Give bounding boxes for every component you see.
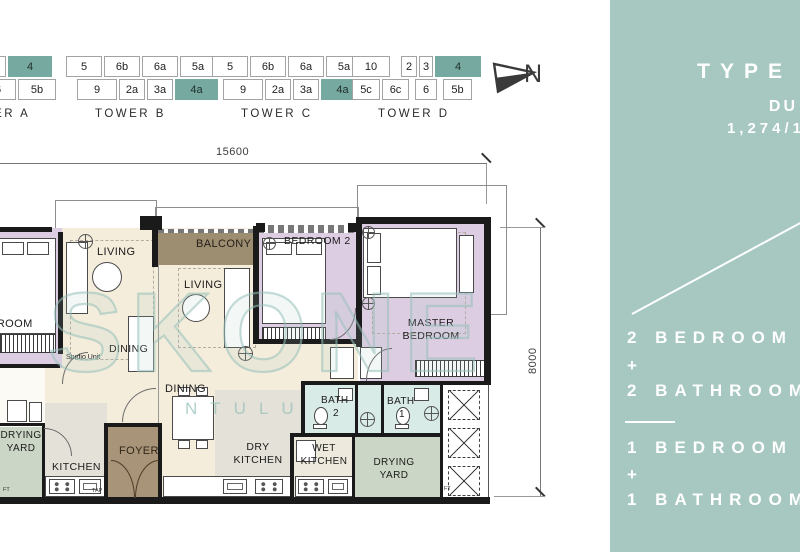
shower-icon bbox=[424, 406, 439, 421]
sink-icon bbox=[223, 479, 247, 494]
wall-segment bbox=[104, 423, 162, 427]
ceiling-fan-icon bbox=[263, 237, 276, 250]
wardrobe-icon bbox=[0, 334, 56, 353]
annotation-ft: FT bbox=[3, 487, 10, 493]
label-wet-kitchen-line2: KITCHEN bbox=[301, 456, 348, 467]
shower-icon bbox=[360, 412, 375, 427]
chair-icon bbox=[196, 440, 208, 449]
basin-icon bbox=[414, 388, 429, 401]
wall-segment bbox=[484, 217, 491, 385]
label-dry-kitchen-line1: DRY bbox=[246, 441, 269, 453]
unit1-bathrooms: 2 BATHROOM bbox=[627, 381, 800, 401]
sink-icon bbox=[328, 479, 348, 494]
stove-icon bbox=[49, 479, 75, 494]
label-drying-line2: YARD bbox=[7, 443, 36, 454]
wall-segment bbox=[356, 220, 362, 347]
diagonal-accent-line bbox=[632, 222, 800, 315]
ceiling-fan-icon bbox=[238, 346, 253, 361]
label-master-bedroom: MASTER BEDROOM bbox=[393, 317, 469, 342]
label-foyer: FOYER bbox=[119, 445, 159, 457]
label-drying-line1: DRYING bbox=[0, 430, 41, 441]
wall-segment bbox=[58, 232, 63, 354]
chair-icon bbox=[178, 440, 190, 449]
wall-segment bbox=[355, 385, 358, 433]
label-bath1: BATH bbox=[387, 396, 415, 407]
label-dry-kitchen: DRY KITCHEN bbox=[212, 441, 304, 466]
stove-icon bbox=[255, 479, 283, 494]
wall-segment bbox=[381, 381, 384, 435]
wall-segment bbox=[253, 226, 259, 344]
round-table-icon bbox=[182, 294, 210, 322]
label-kitchen: KITCHEN bbox=[52, 461, 101, 473]
label-master-line2: BEDROOM bbox=[402, 330, 459, 342]
wall-segment bbox=[256, 339, 358, 344]
water-heater-icon bbox=[29, 402, 42, 422]
unit1-bedrooms: 2 BEDROOM bbox=[627, 328, 793, 348]
pillow-icon bbox=[367, 266, 381, 295]
unit2-plus: + bbox=[627, 465, 644, 485]
label-drying2-line1: DRYING bbox=[373, 457, 414, 468]
window-strip bbox=[258, 225, 356, 229]
wardrobe-icon bbox=[415, 360, 485, 377]
washer-icon bbox=[7, 400, 27, 422]
watermark-logo-sub: NTULU bbox=[185, 399, 307, 419]
toilet-icon bbox=[314, 407, 328, 425]
closet-icon bbox=[330, 347, 354, 379]
label-studio-bedroom: BEDROOM bbox=[0, 318, 33, 330]
annotation-tap: TAP bbox=[92, 488, 102, 494]
floor-plan-brochure: { "colors": { "sidebar_bg": "#a6c8c1", "… bbox=[0, 0, 800, 552]
label-master-line1: MASTER bbox=[408, 317, 454, 329]
label-drying2-line2: YARD bbox=[380, 470, 409, 481]
sofa-icon bbox=[66, 242, 88, 314]
toilet-base-icon bbox=[313, 424, 327, 429]
label-wet-kitchen: WET KITCHEN bbox=[294, 443, 354, 468]
label-dry-kitchen-line2: KITCHEN bbox=[234, 454, 283, 466]
floor-plan: BEDROOM LIVING DINING Studio Unit BALCON… bbox=[0, 0, 610, 552]
label-studio-dining: DINING bbox=[109, 343, 148, 355]
ac-unit-icon bbox=[448, 390, 480, 420]
sofa-icon bbox=[224, 268, 250, 348]
label-wet-kitchen-line1: WET bbox=[312, 443, 335, 454]
unit-boundary bbox=[158, 265, 159, 423]
label-dining: DINING bbox=[165, 383, 206, 395]
label-studio-drying-yard: DRYING YARD bbox=[0, 430, 42, 455]
ceiling-fan-icon bbox=[362, 226, 375, 239]
unit-subtitle: DU bbox=[769, 98, 798, 116]
info-sidebar: TYPE DU 1,274/1 2 BEDROOM + 2 BATHROOM 1… bbox=[610, 0, 800, 552]
ac-unit-icon bbox=[448, 466, 480, 496]
stove-icon bbox=[298, 479, 324, 494]
ceiling-fan-icon bbox=[362, 297, 375, 310]
label-studio-living: LIVING bbox=[97, 246, 135, 258]
unit1-plus: + bbox=[627, 356, 644, 376]
wall-segment bbox=[104, 423, 108, 500]
wall-segment bbox=[290, 433, 440, 437]
wall-segment bbox=[356, 217, 490, 224]
unit-area: 1,274/1 bbox=[727, 120, 800, 137]
pillow-icon bbox=[2, 242, 24, 255]
divider-line bbox=[625, 421, 675, 423]
wall-segment bbox=[0, 497, 490, 504]
pillow-icon bbox=[27, 242, 49, 255]
unit2-bedrooms: 1 BEDROOM bbox=[627, 438, 793, 458]
label-bath2-num: 2 bbox=[333, 408, 339, 419]
label-bedroom2: BEDROOM 2 bbox=[284, 235, 351, 247]
unit2-bathrooms: 1 BATHROOM bbox=[627, 490, 800, 510]
label-bath2: BATH bbox=[321, 395, 349, 406]
wall-segment bbox=[0, 423, 45, 426]
label-bath1-num: 1 bbox=[399, 409, 405, 420]
wall-segment bbox=[140, 216, 162, 230]
label-living: LIVING bbox=[184, 279, 222, 291]
annotation-ft: FT bbox=[444, 486, 451, 492]
label-studio-unit-note: Studio Unit bbox=[66, 354, 100, 361]
toilet-base-icon bbox=[395, 424, 409, 429]
wall-segment bbox=[440, 383, 443, 497]
label-drying-yard2: DRYING YARD bbox=[363, 457, 425, 482]
round-table-icon bbox=[92, 262, 122, 292]
wall-segment bbox=[0, 227, 52, 232]
label-balcony: BALCONY bbox=[196, 238, 251, 250]
dresser-icon bbox=[459, 235, 474, 293]
ac-unit-icon bbox=[448, 428, 480, 458]
ceiling-fan-icon bbox=[78, 234, 93, 249]
wall-segment bbox=[301, 381, 490, 385]
unit-type-title: TYPE bbox=[697, 60, 792, 84]
wall-segment bbox=[152, 217, 158, 267]
wall-segment bbox=[0, 364, 60, 368]
